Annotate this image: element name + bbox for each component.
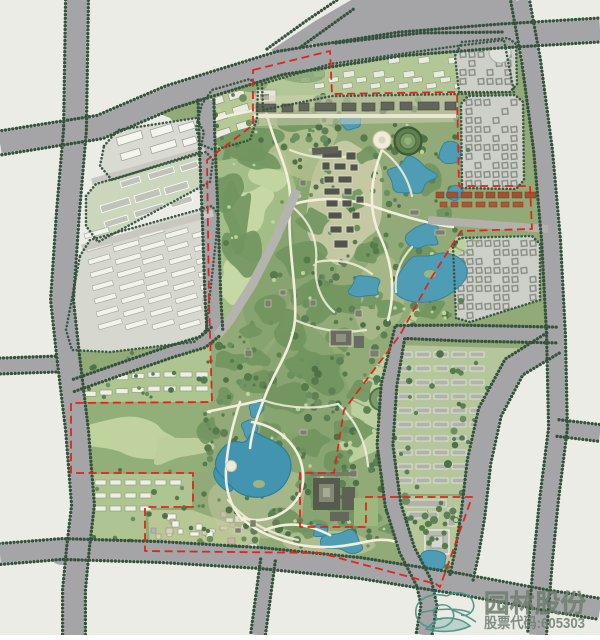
svg-text:股票代码:605303: 股票代码:605303 — [484, 614, 585, 632]
svg-text:园林股份: 园林股份 — [484, 590, 586, 618]
